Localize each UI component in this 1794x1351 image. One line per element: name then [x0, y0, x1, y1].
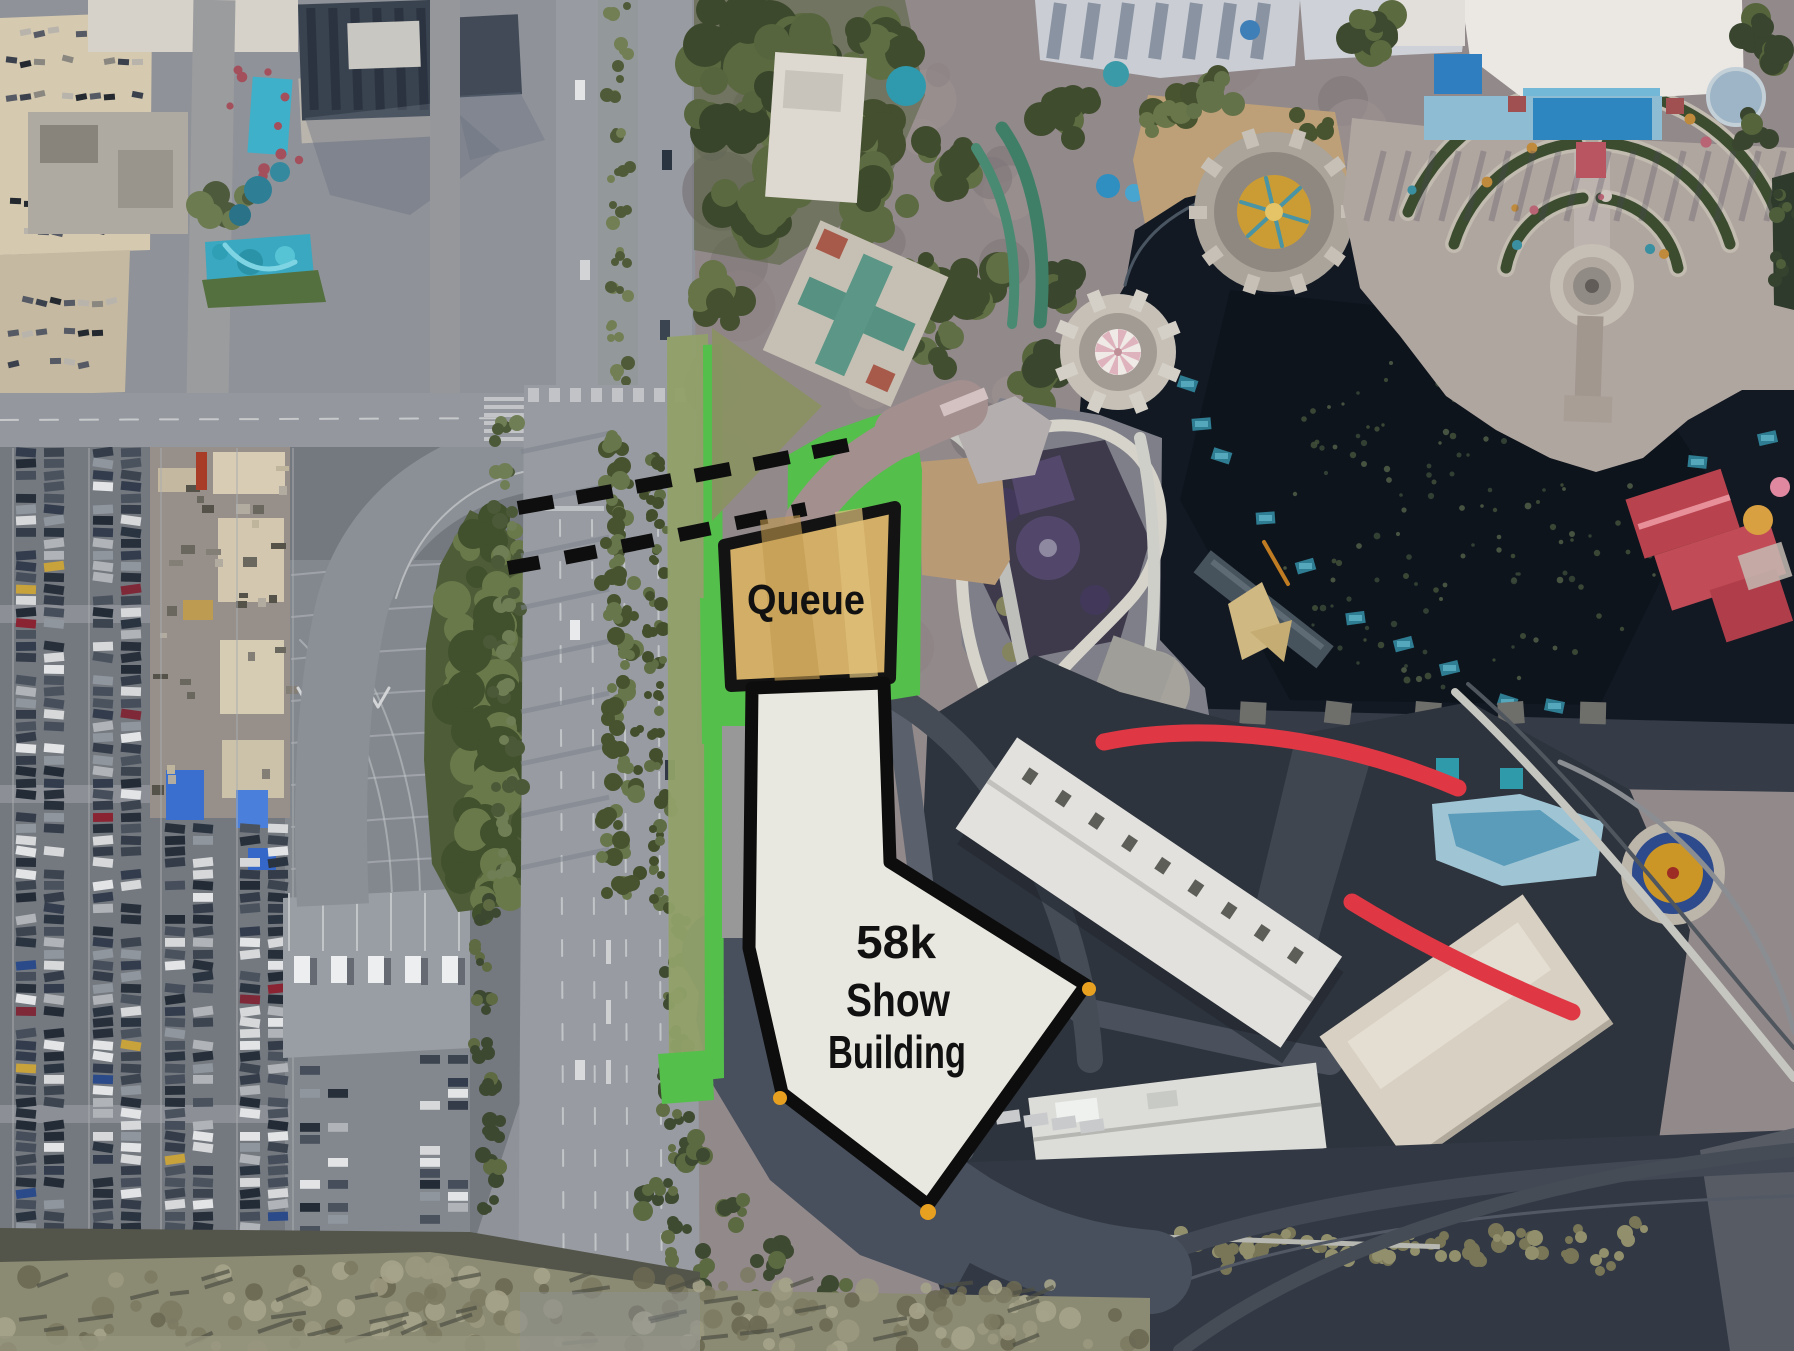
svg-text:58k: 58k — [856, 916, 936, 968]
svg-text:Queue: Queue — [747, 576, 865, 623]
svg-text:Show: Show — [846, 974, 950, 1026]
svg-text:Building: Building — [828, 1026, 966, 1078]
